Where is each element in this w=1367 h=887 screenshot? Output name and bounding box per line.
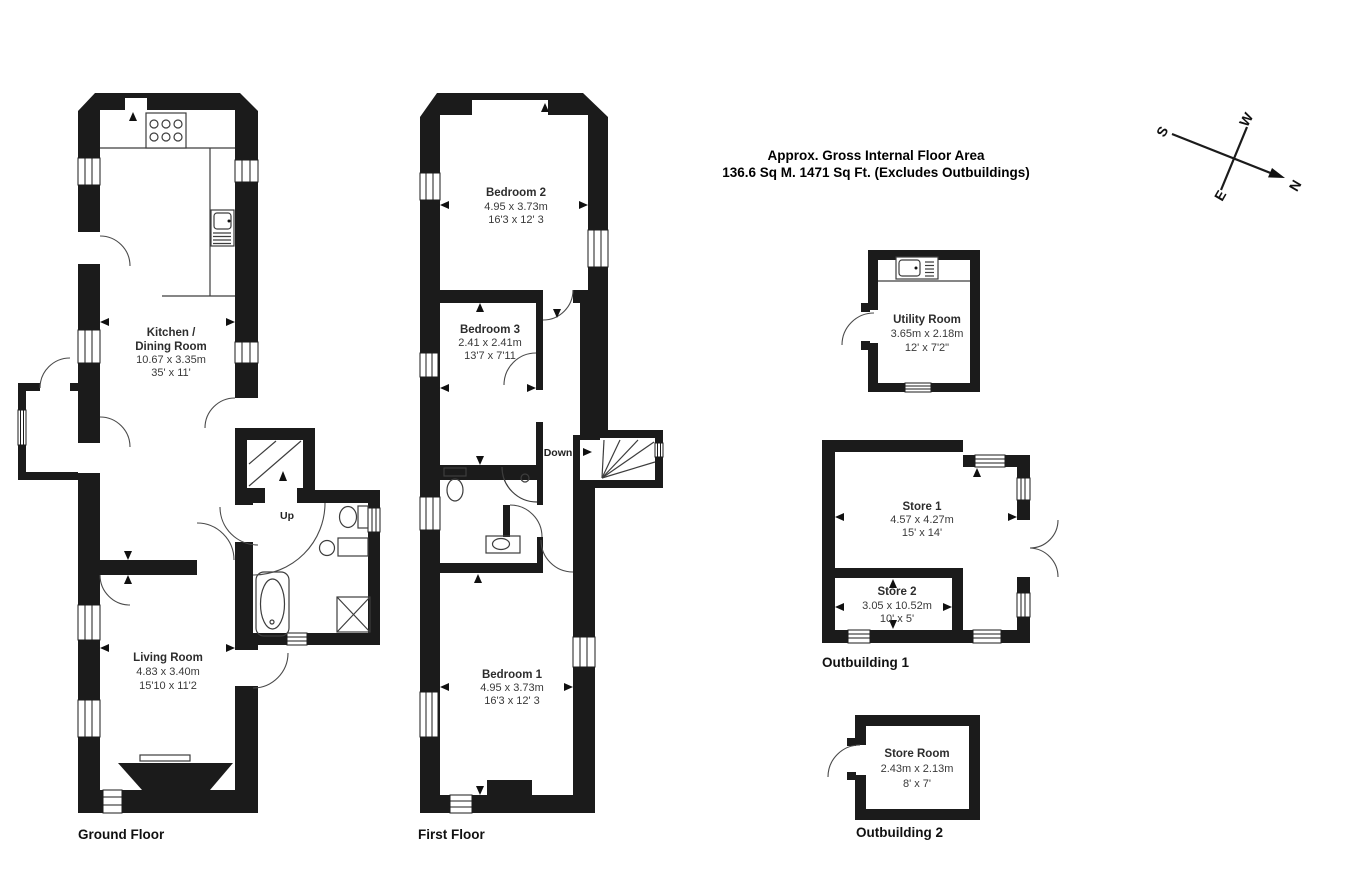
- room-dim-imperial: 15'10 x 11'2: [139, 680, 197, 692]
- door-opening: [265, 488, 297, 503]
- utility-room-plan: Utility Room 3.65m x 2.18m 12' x 7'2": [842, 250, 980, 392]
- door-swing-arc: [253, 653, 288, 688]
- room-name: Bedroom 1: [482, 669, 543, 681]
- room-dim-imperial: 12' x 7'2": [905, 342, 949, 354]
- door-post: [847, 772, 856, 780]
- door-swing-arc: [1030, 548, 1058, 577]
- double-door-arcs: [1030, 520, 1058, 577]
- door-swing-arc: [1030, 520, 1058, 548]
- window: [450, 795, 472, 813]
- compass-north: N: [1286, 177, 1305, 194]
- room-name: Bedroom 3: [460, 324, 520, 336]
- ground-floor-label: Ground Floor: [78, 827, 165, 842]
- door-opening: [855, 745, 866, 775]
- door-opening: [868, 310, 878, 343]
- compass-south: S: [1153, 123, 1172, 139]
- door-opening: [1017, 520, 1030, 577]
- room-name: Dining Room: [135, 341, 207, 353]
- window: [18, 410, 26, 445]
- window: [78, 700, 100, 737]
- window: [1017, 478, 1030, 500]
- door-opening: [78, 443, 100, 473]
- window: [420, 692, 438, 737]
- room-dim-metric: 10.67 x 3.35m: [136, 354, 206, 366]
- store1-floor: [835, 452, 963, 568]
- room-name: Store 2: [878, 586, 917, 598]
- first-floor-plan: Bedroom 2 4.95 x 3.73m 16'3 x 12' 3 Bedr…: [418, 93, 663, 842]
- door-opening: [197, 560, 235, 575]
- door-post: [847, 738, 856, 746]
- kitchen-sink-icon: [211, 210, 234, 246]
- bathroom-floor: [253, 503, 368, 633]
- outbuilding1-plan: Store 1 4.57 x 4.27m 15' x 14' Store 2 3…: [822, 440, 1058, 670]
- window: [975, 455, 1005, 467]
- window: [78, 330, 100, 363]
- room-dim-imperial: 8' x 7': [903, 778, 931, 790]
- room-name: Store 1: [903, 501, 943, 513]
- window: [420, 173, 440, 200]
- room-dim-metric: 3.05 x 10.52m: [862, 600, 932, 612]
- wall-recess: [472, 100, 548, 115]
- room-name: Utility Room: [893, 314, 961, 326]
- porch-floor: [26, 391, 78, 472]
- compass-east: E: [1211, 187, 1230, 203]
- window: [235, 160, 258, 182]
- window: [78, 158, 100, 185]
- room-dim-metric: 2.41 x 2.41m: [458, 337, 522, 349]
- room-dim-metric: 4.57 x 4.27m: [890, 514, 954, 526]
- north-arrowhead-icon: [1268, 168, 1285, 178]
- room-name: Living Room: [133, 652, 203, 664]
- window: [235, 342, 258, 363]
- floor-area-title: Approx. Gross Internal Floor Area 136.6 …: [722, 148, 1030, 180]
- door-opening: [235, 650, 258, 686]
- outbuilding1-label: Outbuilding 1: [822, 655, 909, 670]
- window: [588, 230, 608, 267]
- floorplan-drawing: Kitchen / Dining Room 10.67 x 3.35m 35' …: [0, 0, 1367, 887]
- compass-rose: S W E N: [1153, 109, 1305, 203]
- hob-icon: [146, 113, 186, 148]
- door-post: [861, 341, 870, 350]
- window: [973, 630, 1001, 643]
- door-opening: [235, 398, 258, 428]
- stairs-down-label: Down: [544, 447, 573, 459]
- room-dim-imperial: 16'3 x 12' 3: [484, 695, 540, 707]
- store1-floor: [963, 467, 1017, 630]
- outbuilding2-label: Outbuilding 2: [856, 825, 943, 840]
- room-name: Kitchen /: [147, 327, 196, 339]
- room-dim-imperial: 15' x 14': [902, 527, 942, 539]
- door-opening: [40, 383, 70, 391]
- window: [848, 630, 870, 643]
- window: [103, 790, 122, 813]
- door-post: [861, 303, 870, 312]
- window: [1017, 593, 1030, 617]
- outbuilding2-plan: Store Room 2.43m x 2.13m 8' x 7' Outbuil…: [828, 715, 980, 840]
- title-line1: Approx. Gross Internal Floor Area: [767, 148, 985, 163]
- door-opening: [536, 390, 543, 422]
- door-opening: [580, 440, 600, 480]
- room-dim-imperial: 13'7 x 7'11: [464, 350, 516, 362]
- window: [78, 605, 100, 640]
- room-dim-metric: 4.83 x 3.40m: [136, 666, 200, 678]
- chimney-breast: [487, 780, 532, 795]
- first-floor-label: First Floor: [418, 827, 485, 842]
- floorplan-page: Kitchen / Dining Room 10.67 x 3.35m 35' …: [0, 0, 1367, 887]
- door-opening: [543, 290, 573, 303]
- title-line2: 136.6 Sq M. 1471 Sq Ft. (Excludes Outbui…: [722, 165, 1030, 180]
- door-opening: [125, 98, 147, 110]
- room-dim-metric: 3.65m x 2.18m: [891, 328, 964, 340]
- bathroom-floor: [440, 480, 537, 563]
- room-dim-metric: 4.95 x 3.73m: [484, 201, 548, 213]
- window: [655, 443, 663, 457]
- room-dim-imperial: 10' x 5': [880, 613, 914, 625]
- ground-floor-plan: Kitchen / Dining Room 10.67 x 3.35m 35' …: [18, 93, 380, 842]
- hallway-floor: [543, 303, 580, 435]
- door-opening: [78, 232, 100, 264]
- window: [905, 383, 931, 392]
- room-dim-metric: 2.43m x 2.13m: [881, 763, 954, 775]
- room-dim-metric: 4.95 x 3.73m: [480, 682, 544, 694]
- window: [287, 633, 307, 645]
- window: [368, 508, 380, 532]
- window: [420, 353, 438, 377]
- door-opening: [235, 505, 253, 542]
- compass-west: W: [1236, 109, 1257, 129]
- stairs-up-label: Up: [280, 510, 294, 522]
- interior-wall: [503, 505, 510, 537]
- window: [420, 497, 440, 530]
- window: [573, 637, 595, 667]
- room-name: Store Room: [884, 748, 949, 760]
- room-name: Bedroom 2: [486, 187, 546, 199]
- room-dim-imperial: 16'3 x 12' 3: [488, 214, 544, 226]
- room-dim-imperial: 35' x 11': [151, 367, 190, 379]
